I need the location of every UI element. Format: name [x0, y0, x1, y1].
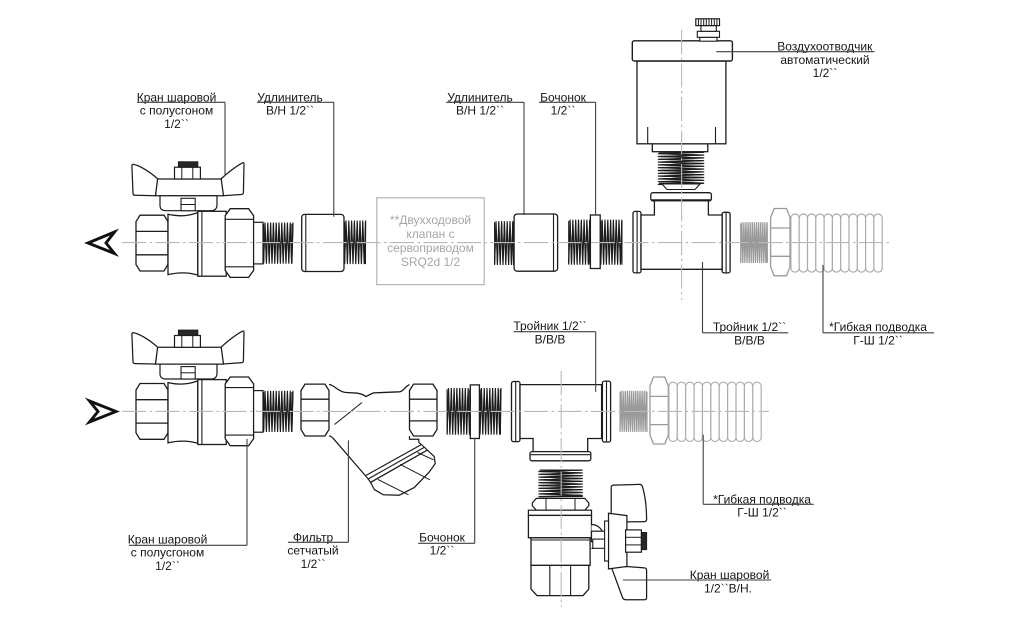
svg-text:*Гибкая подводка: *Гибкая подводка [829, 320, 927, 334]
svg-text:SRQ2d 1/2: SRQ2d 1/2 [401, 255, 461, 269]
svg-text:Г-Ш 1/2``: Г-Ш 1/2`` [737, 506, 787, 520]
svg-text:сетчатый: сетчатый [287, 544, 338, 558]
svg-text:1/2``В/Н.: 1/2``В/Н. [704, 581, 752, 595]
svg-text:1/2``: 1/2`` [164, 117, 189, 131]
svg-text:1/2``: 1/2`` [301, 557, 326, 571]
svg-text:Г-Ш 1/2``: Г-Ш 1/2`` [853, 333, 903, 347]
svg-text:**Двухходовой: **Двухходовой [390, 213, 471, 227]
svg-text:В/В/В: В/В/В [734, 333, 765, 347]
svg-text:Бочонок: Бочонок [419, 530, 466, 544]
svg-text:с полусгоном: с полусгоном [131, 546, 204, 560]
svg-text:1/2``: 1/2`` [155, 559, 180, 573]
svg-text:1/2``: 1/2`` [813, 66, 838, 80]
svg-text:автоматический: автоматический [780, 53, 869, 67]
svg-text:1/2``: 1/2`` [551, 104, 576, 118]
svg-text:В/Н 1/2``: В/Н 1/2`` [266, 104, 314, 118]
svg-text:1/2``: 1/2`` [430, 544, 455, 558]
svg-text:Кран шаровой: Кран шаровой [128, 532, 208, 546]
svg-text:клапан с: клапан с [406, 227, 454, 241]
svg-text:с полусгоном: с полусгоном [140, 104, 213, 118]
svg-text:Тройник 1/2``: Тройник 1/2`` [713, 320, 786, 334]
svg-text:В/Н 1/2``: В/Н 1/2`` [456, 104, 504, 118]
svg-text:Тройник 1/2``: Тройник 1/2`` [513, 319, 586, 333]
svg-text:В/В/В: В/В/В [535, 332, 566, 346]
